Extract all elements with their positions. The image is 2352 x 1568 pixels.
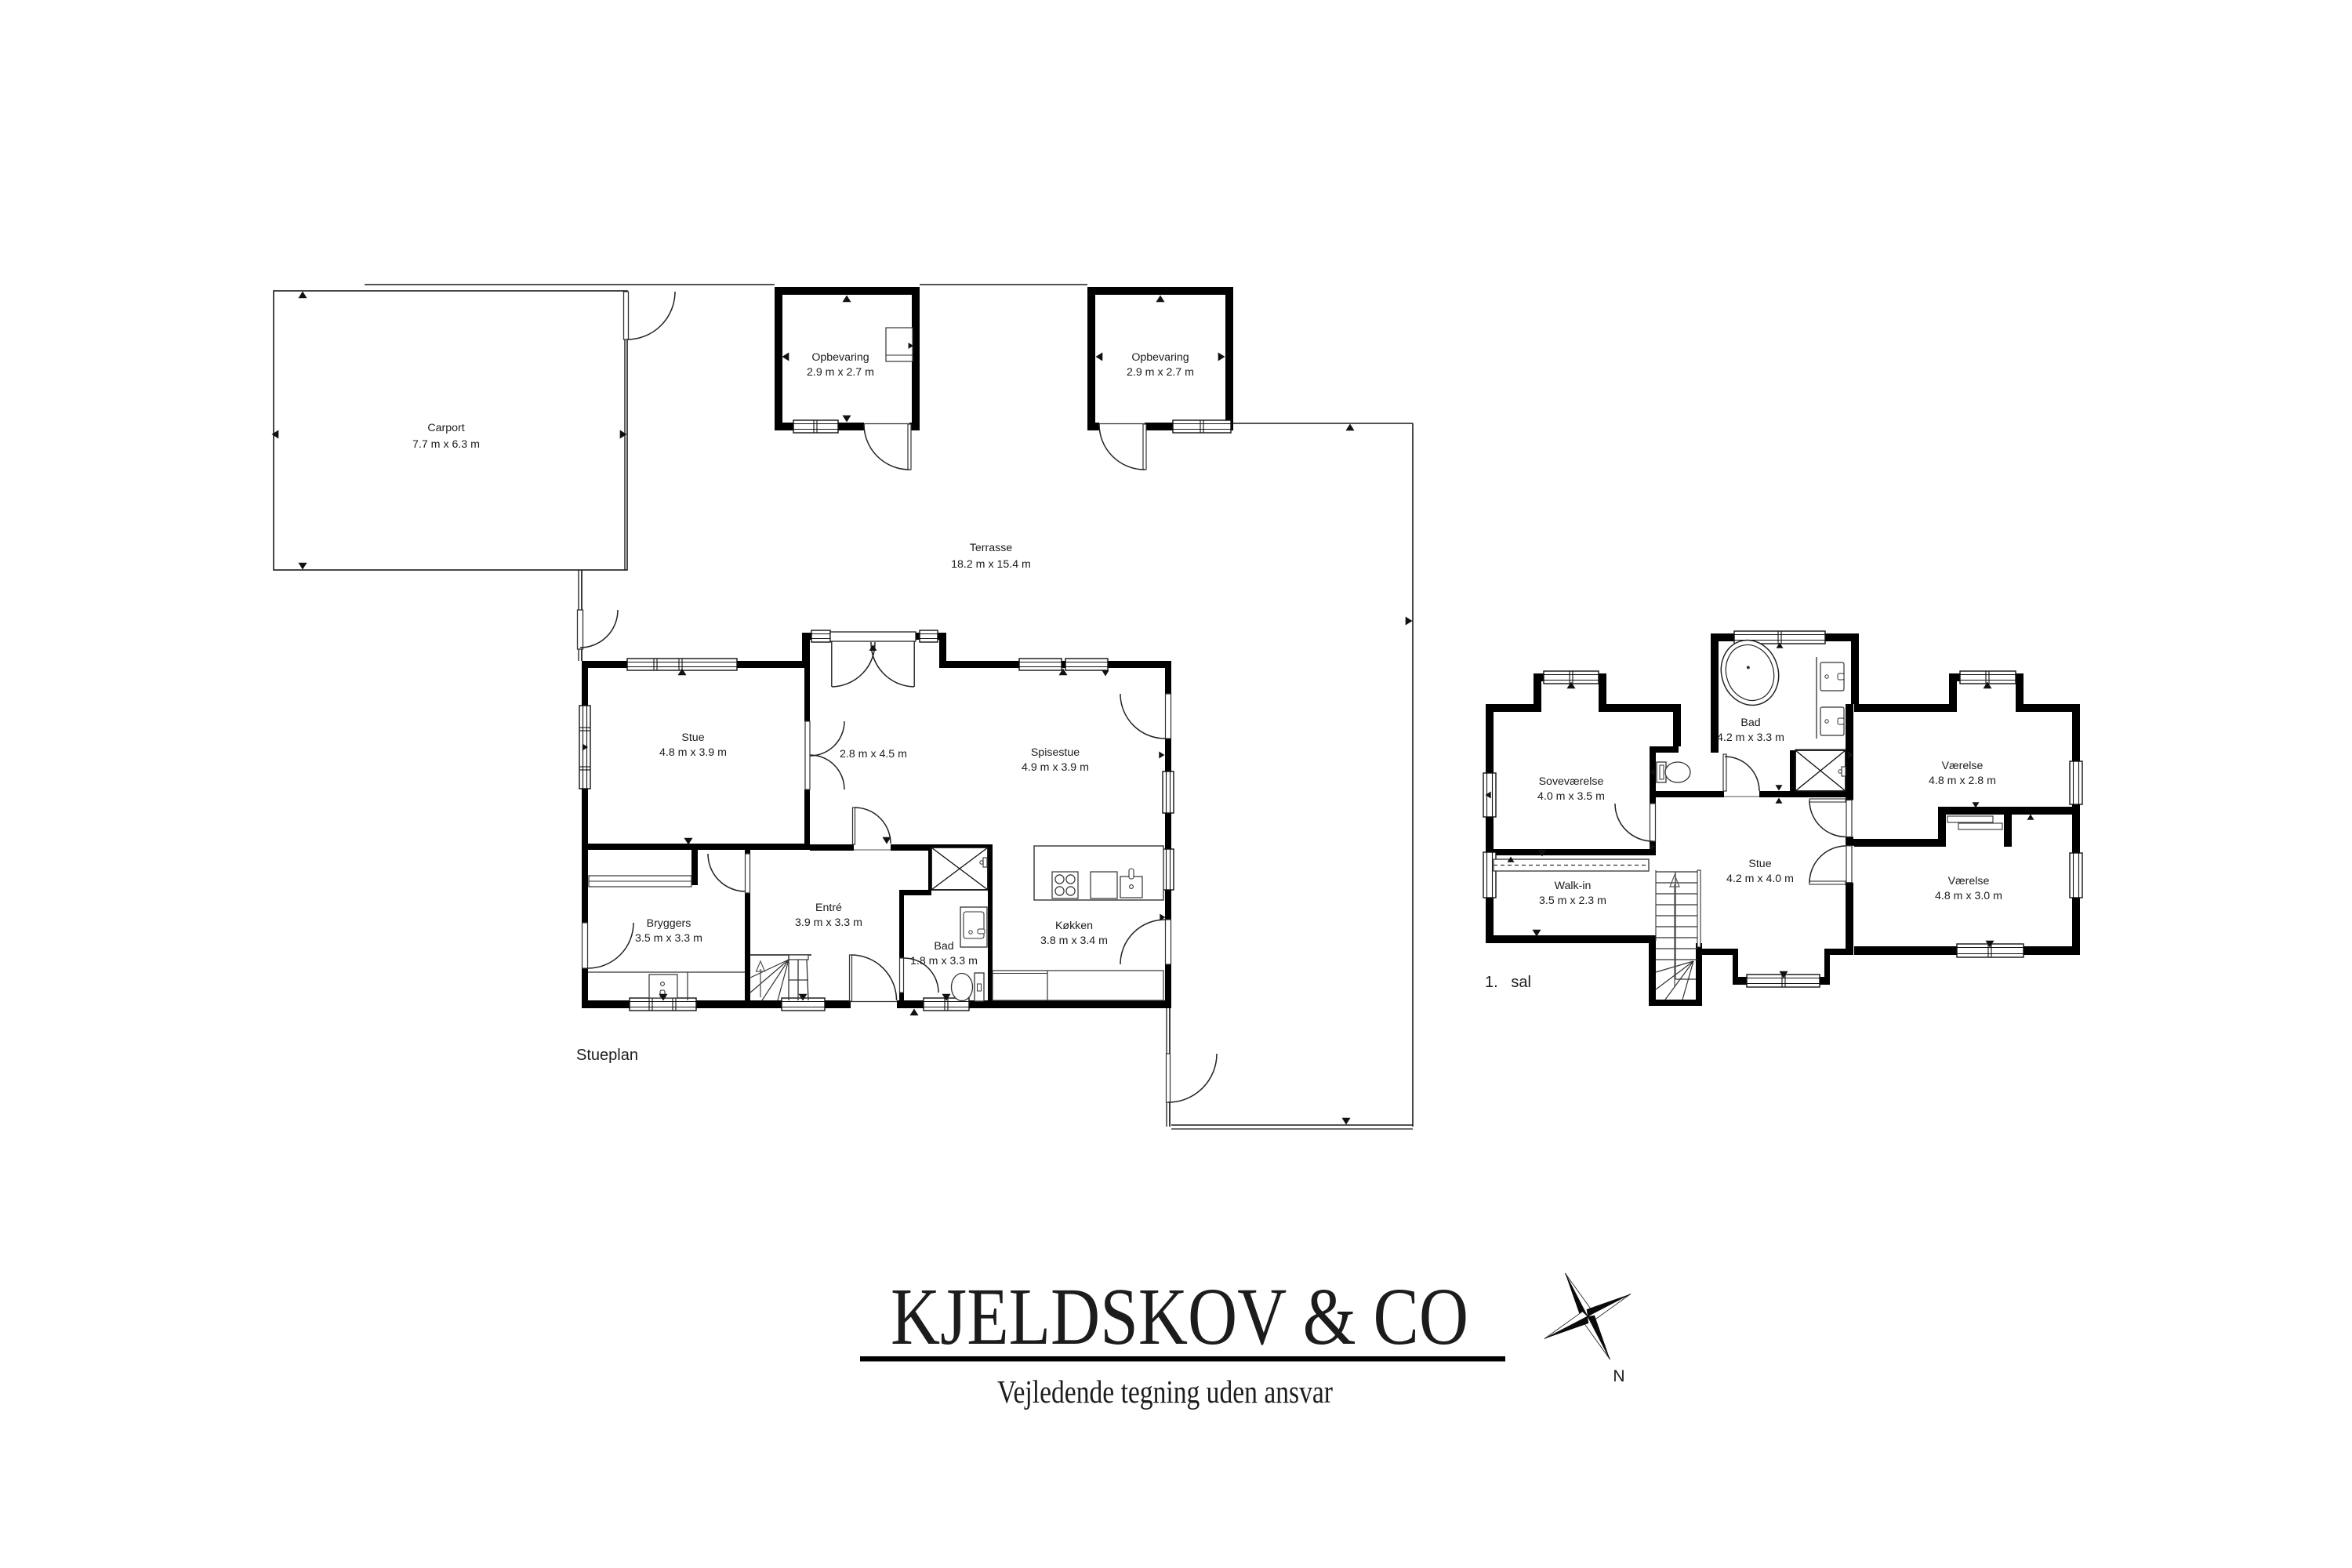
svg-text:Carport: Carport [427, 422, 464, 434]
svg-text:1.8 m x 3.3 m: 1.8 m x 3.3 m [910, 955, 978, 967]
svg-text:Opbevaring: Opbevaring [811, 351, 869, 364]
svg-text:Vejledende tegning uden ansvar: Vejledende tegning uden ansvar [997, 1374, 1333, 1410]
svg-text:1. sal: 1. sal [1485, 974, 1531, 991]
svg-text:Walk-in: Walk-in [1555, 880, 1592, 892]
svg-text:7.7 m x 6.3 m: 7.7 m x 6.3 m [412, 438, 480, 451]
svg-text:4.0 m x 3.5 m: 4.0 m x 3.5 m [1537, 790, 1605, 803]
svg-text:Bad: Bad [934, 940, 953, 953]
svg-text:3.8 m x 3.4 m: 3.8 m x 3.4 m [1040, 935, 1108, 947]
svg-text:Entré: Entré [815, 902, 842, 914]
svg-text:KJELDSKOV & CO: KJELDSKOV & CO [891, 1272, 1468, 1362]
svg-text:4.2 m x 4.0 m: 4.2 m x 4.0 m [1726, 873, 1794, 885]
svg-text:2.9 m x 2.7 m: 2.9 m x 2.7 m [807, 366, 874, 379]
svg-text:Køkken: Køkken [1055, 920, 1093, 932]
svg-text:Stue: Stue [1748, 858, 1771, 870]
svg-text:Stue: Stue [681, 731, 704, 744]
svg-text:4.8 m x 3.0 m: 4.8 m x 3.0 m [1935, 890, 2002, 902]
svg-text:N: N [1613, 1367, 1624, 1385]
svg-text:4.8 m x 2.8 m: 4.8 m x 2.8 m [1929, 775, 1996, 787]
svg-text:3.5 m x 2.3 m: 3.5 m x 2.3 m [1539, 895, 1606, 907]
svg-text:Opbevaring: Opbevaring [1131, 351, 1189, 364]
svg-text:Værelse: Værelse [1948, 875, 1990, 887]
svg-text:Stueplan: Stueplan [576, 1047, 638, 1064]
svg-text:Terrasse: Terrasse [970, 542, 1013, 554]
svg-text:Spisestue: Spisestue [1031, 746, 1080, 759]
svg-text:3.9 m x 3.3 m: 3.9 m x 3.3 m [795, 916, 862, 929]
svg-text:2.8 m x 4.5 m: 2.8 m x 4.5 m [840, 748, 907, 760]
svg-text:Soveværelse: Soveværelse [1539, 775, 1604, 788]
svg-text:3.5 m x 3.3 m: 3.5 m x 3.3 m [635, 932, 702, 945]
svg-text:4.9 m x 3.9 m: 4.9 m x 3.9 m [1022, 761, 1089, 774]
svg-text:Bryggers: Bryggers [647, 917, 691, 930]
svg-text:2.9 m x 2.7 m: 2.9 m x 2.7 m [1127, 366, 1194, 379]
svg-text:Værelse: Værelse [1942, 760, 1984, 772]
svg-text:18.2 m x 15.4 m: 18.2 m x 15.4 m [951, 558, 1031, 571]
svg-text:4.8 m x 3.9 m: 4.8 m x 3.9 m [659, 746, 727, 759]
svg-text:Bad: Bad [1740, 717, 1760, 729]
svg-text:4.2 m x 3.3 m: 4.2 m x 3.3 m [1717, 731, 1784, 744]
